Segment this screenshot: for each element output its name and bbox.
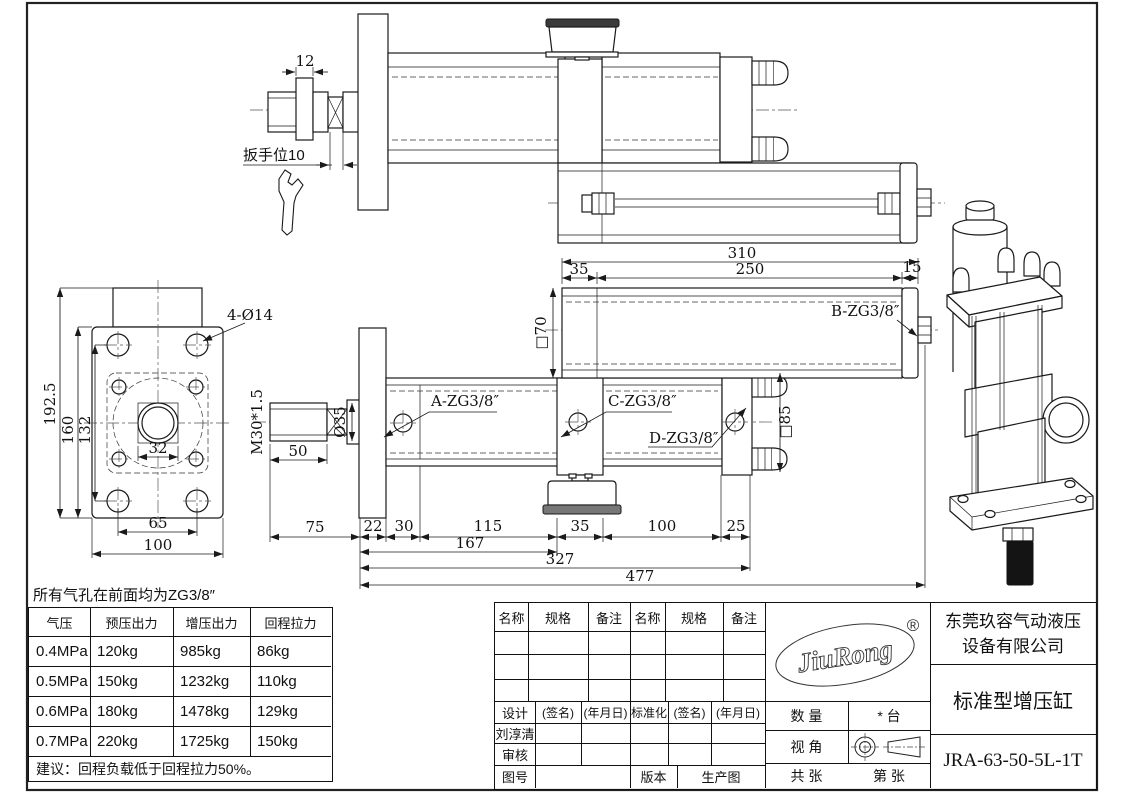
- force-table: 气压 预压出力 增压出力 回程拉力 0.4MPa 120kg 985kg 86k…: [28, 607, 333, 782]
- designer-name: 刘淳清: [495, 723, 535, 743]
- table-cell: 110kg: [250, 666, 338, 696]
- dim-100: 100: [648, 517, 677, 535]
- col-header-boost: 增压出力: [173, 608, 250, 636]
- sheet-no-label: 第 张: [848, 763, 930, 788]
- wrench-position-label: 扳手位10: [243, 147, 305, 164]
- port-a-label: A-ZG3/8″: [430, 392, 499, 410]
- port-b-label: B-ZG3/8″: [831, 302, 900, 320]
- table-cell: 1725kg: [173, 726, 257, 756]
- review-label: 审核: [495, 743, 535, 765]
- oil-cup-bottom: [548, 481, 616, 505]
- dim-327: 327: [546, 550, 575, 568]
- sign-label2: (签名): [668, 701, 711, 723]
- view-angle-label: 视 角: [765, 730, 848, 763]
- registered-mark: ®: [907, 616, 920, 635]
- bom-header-name: 名称: [495, 603, 528, 631]
- port-c-label: C-ZG3/8″: [608, 392, 677, 410]
- dim-22: 22: [363, 517, 382, 535]
- dim-65: 65: [148, 514, 167, 532]
- table-cell: 129kg: [250, 696, 338, 726]
- bom-header-spec: 规格: [528, 603, 588, 631]
- dim-50: 50: [288, 442, 307, 460]
- dim-477: 477: [626, 567, 655, 585]
- dim-75: 75: [305, 518, 324, 536]
- dim-12: 12: [295, 52, 314, 70]
- table-cell: 0.4MPa: [29, 636, 97, 666]
- drawing-no-label: 图号: [495, 765, 535, 788]
- bom-header-note: 备注: [588, 603, 630, 631]
- date-label2: (年月日): [711, 701, 765, 723]
- holes-callout: 4-Ø14: [227, 306, 273, 324]
- acorn-nut: [752, 137, 774, 161]
- dim-rod-thread: M30*1.5: [248, 389, 266, 455]
- acorn-nut: [752, 61, 774, 85]
- dim-132: 132: [76, 416, 94, 445]
- table-cell: 150kg: [90, 666, 180, 696]
- dim-30: 30: [394, 517, 413, 535]
- dim-25: 25: [726, 517, 745, 535]
- dim-167: 167: [456, 534, 485, 552]
- standardization-label: 标准化: [630, 701, 668, 723]
- table-cell: 1478kg: [173, 696, 257, 726]
- dim-sq70: □70: [532, 316, 550, 349]
- table-cell: 180kg: [90, 696, 180, 726]
- version-label: 版本: [630, 765, 677, 788]
- bom-header-name2: 名称: [630, 603, 665, 631]
- suggestion-note: 建议：回程负载低于回程拉力50%。: [29, 756, 338, 781]
- dim-100w: 100: [144, 536, 173, 554]
- table-cell: 1232kg: [173, 666, 257, 696]
- wrench-icon: [279, 170, 303, 235]
- table-cell: 0.5MPa: [29, 666, 97, 696]
- dim-35b: 35: [569, 260, 588, 278]
- col-header-return: 回程拉力: [250, 608, 331, 636]
- company-name: 东莞玖容气动液压 设备有限公司: [930, 609, 1096, 659]
- isometric-view: [947, 201, 1093, 585]
- title-block: 名称 规格 备注 名称 规格 备注 设计 (签名) (年月日) 标准化 (签名)…: [494, 602, 1097, 790]
- table-cell: 86kg: [250, 636, 338, 666]
- table-cell: 150kg: [250, 726, 338, 756]
- dim-32: 32: [148, 439, 167, 457]
- oil-cup-cap: [546, 19, 619, 27]
- design-label: 设计: [495, 701, 535, 723]
- top-view: 12 扳手位10: [243, 14, 945, 243]
- table-cell: 220kg: [90, 726, 180, 756]
- bom-header-note2: 备注: [723, 603, 765, 631]
- quantity-label: 数 量: [765, 701, 848, 730]
- date-label: (年月日): [581, 701, 630, 723]
- dim-rod-dia: Ø35: [331, 406, 349, 437]
- oil-cup: [549, 27, 616, 52]
- dim-15: 15: [902, 258, 921, 276]
- flange-view: 4-Ø14 192.5 160 132 32 65 100: [41, 280, 273, 558]
- jiurong-logo: JiuRong ®: [765, 603, 930, 701]
- col-header-pressure: 气压: [29, 608, 90, 636]
- drawing-sheet: 12 扳手位10: [0, 0, 1123, 794]
- total-sheets-label: 共 张: [765, 763, 848, 788]
- dim-192-5: 192.5: [41, 383, 59, 426]
- bom-header-spec2: 规格: [665, 603, 723, 631]
- quantity-value: * 台: [848, 701, 930, 730]
- table-cell: 0.6MPa: [29, 696, 97, 726]
- main-view: M30*1.5 Ø35: [248, 244, 938, 589]
- table-cell: 985kg: [173, 636, 257, 666]
- model-number: JRA-63-50-5L-1T: [930, 734, 1096, 788]
- dim-160: 160: [59, 416, 77, 445]
- dim-115: 115: [474, 517, 503, 535]
- first-angle-projection-icon: [848, 730, 930, 763]
- dim-250: 250: [736, 260, 765, 278]
- air-port-note: 所有气孔在前面均为ZG3/8″: [33, 584, 215, 605]
- threaded-stud: [1007, 541, 1033, 585]
- table-cell: 0.7MPa: [29, 726, 97, 756]
- dim-sq85: □85: [776, 405, 794, 438]
- production-label: 生产图: [677, 765, 765, 788]
- sign-label: (签名): [535, 701, 581, 723]
- col-header-preload: 预压出力: [90, 608, 173, 636]
- product-name: 标准型增压缸: [930, 664, 1096, 734]
- table-cell: 120kg: [90, 636, 180, 666]
- dim-35: 35: [570, 517, 589, 535]
- svg-text:JiuRong: JiuRong: [794, 634, 895, 679]
- oil-cup-base: [543, 505, 621, 514]
- port-d-label: D-ZG3/8″: [649, 429, 719, 447]
